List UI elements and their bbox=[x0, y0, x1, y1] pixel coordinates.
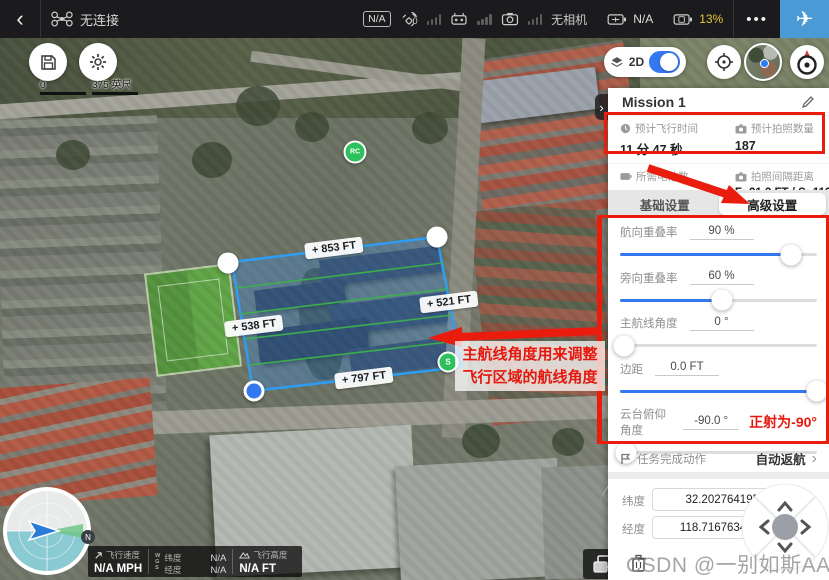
app-screen: + 853 FT + 521 FT + 538 FT + 797 FT S RC… bbox=[0, 0, 829, 580]
trash-icon bbox=[630, 554, 647, 573]
mission-settings-button[interactable] bbox=[79, 43, 117, 81]
wgs-label: WGS bbox=[155, 549, 160, 574]
margin-slider[interactable] bbox=[620, 390, 817, 393]
slider-knob[interactable] bbox=[807, 381, 828, 402]
vertex-handle[interactable] bbox=[427, 227, 448, 248]
selected-vertex-handle[interactable] bbox=[244, 381, 265, 402]
map-2d-label: 2D bbox=[629, 55, 644, 69]
settings-tabs: 基础设置 高级设置 bbox=[608, 190, 829, 218]
map-scale: 0 375 英尺 bbox=[40, 80, 138, 95]
speed-arrow-icon bbox=[94, 551, 103, 560]
advanced-settings: 航向重叠率90 % 旁向重叠率60 % 主航线角度0 ° bbox=[608, 218, 829, 446]
latitude-label: 纬度 bbox=[622, 493, 645, 509]
aircraft-battery-value: N/A bbox=[633, 12, 653, 26]
side-overlap-value[interactable]: 60 % bbox=[690, 270, 754, 285]
gps-count: 0 bbox=[413, 16, 418, 26]
gimbal-annotation-text: 正射为-90° bbox=[749, 412, 817, 432]
delete-mission-button[interactable] bbox=[630, 554, 647, 573]
side-overlap-slider[interactable] bbox=[620, 299, 817, 302]
lat-value: N/A bbox=[211, 553, 227, 564]
hd-signal-bars bbox=[528, 14, 543, 25]
device-battery-value: 13% bbox=[699, 12, 723, 26]
scale-zero: 0 bbox=[40, 80, 86, 91]
dpad-center[interactable] bbox=[772, 514, 798, 540]
finish-flag-icon bbox=[620, 453, 631, 465]
panel-collapse-button[interactable]: › bbox=[595, 94, 608, 120]
locate-button[interactable] bbox=[707, 45, 741, 79]
gps-signal-bars bbox=[427, 14, 442, 25]
slider-knob[interactable] bbox=[781, 244, 802, 265]
mission-title: Mission 1 bbox=[622, 94, 686, 110]
edit-mission-name-button[interactable] bbox=[801, 95, 815, 109]
mission-panel: › Mission 1 预计飞行时间 11 分 47 秒 bbox=[608, 88, 829, 580]
margin-value[interactable]: 0.0 FT bbox=[655, 361, 719, 376]
telemetry-altitude: 飞行高度 N/A FT bbox=[233, 546, 293, 577]
gear-icon bbox=[88, 52, 108, 72]
altitude-icon bbox=[239, 551, 250, 559]
route-angle-annotation: 主航线角度用来调整 飞行区域的航线角度 bbox=[455, 341, 605, 391]
slider-knob[interactable] bbox=[613, 335, 634, 356]
save-mission-button[interactable] bbox=[29, 43, 67, 81]
plane-icon: ✈ bbox=[796, 7, 814, 31]
back-button[interactable]: ‹ bbox=[0, 0, 40, 38]
drone-icon bbox=[51, 11, 73, 27]
altitude-value: N/A FT bbox=[239, 563, 287, 575]
map-mode-pill: 2D bbox=[604, 47, 686, 77]
route-angle-value[interactable]: 0 ° bbox=[690, 316, 754, 331]
clock-icon bbox=[620, 123, 631, 134]
longitude-label: 经度 bbox=[622, 521, 645, 537]
crosshair-icon bbox=[714, 52, 734, 72]
lng-value: N/A bbox=[211, 565, 227, 576]
telemetry-bar: 飞行速度 N/A MPH WGS 纬度N/A 经度N/A 飞行高度 N/A FT bbox=[88, 546, 302, 577]
stat-flight-time: 预计飞行时间 11 分 47 秒 bbox=[608, 116, 723, 164]
vertex-handle[interactable] bbox=[218, 253, 239, 274]
rc-signal-bars bbox=[477, 14, 492, 25]
minimap-thumbnail[interactable] bbox=[744, 43, 782, 81]
camera-transmission-icon bbox=[501, 12, 519, 26]
remote-controller-icon bbox=[450, 12, 468, 26]
compass-reset-button[interactable] bbox=[790, 45, 824, 79]
slider-route-angle: 主航线角度0 ° bbox=[608, 309, 829, 355]
camera-icon bbox=[735, 124, 747, 134]
finish-action-row[interactable]: 任务完成动作 自动返航 › bbox=[608, 445, 829, 472]
camera-status: 无相机 bbox=[551, 11, 587, 28]
speed-value: N/A MPH bbox=[94, 563, 142, 575]
finish-action-value[interactable]: 自动返航 bbox=[756, 449, 806, 468]
map-compass[interactable]: N bbox=[1, 484, 95, 578]
route-angle-slider[interactable] bbox=[620, 344, 817, 347]
slider-front-overlap: 航向重叠率90 % bbox=[608, 218, 829, 264]
slider-knob[interactable] bbox=[712, 290, 733, 311]
2d-toggle[interactable] bbox=[649, 51, 680, 73]
battery-icon bbox=[620, 172, 632, 181]
scale-distance: 375 英尺 bbox=[92, 80, 138, 91]
rc-location-marker: RC bbox=[344, 141, 367, 164]
gimbal-pitch-value[interactable]: -90.0 ° bbox=[683, 415, 739, 430]
flight-mode-badge: N/A bbox=[363, 11, 391, 27]
section-divider bbox=[608, 472, 829, 479]
slider-margin: 边距0.0 FT bbox=[608, 355, 829, 401]
takeoff-button[interactable]: ✈ bbox=[780, 0, 829, 38]
connection-status: 无连接 bbox=[80, 10, 119, 29]
save-icon bbox=[39, 53, 58, 72]
compass-icon bbox=[794, 48, 820, 76]
stat-photo-count: 预计拍照数量 187 bbox=[723, 116, 829, 164]
chevron-right-icon[interactable]: › bbox=[812, 452, 817, 466]
device-battery-icon bbox=[673, 13, 693, 26]
north-label: N bbox=[85, 533, 91, 542]
telemetry-speed: 飞行速度 N/A MPH bbox=[88, 546, 148, 577]
slider-gimbal-pitch: 云台俯仰角度 -90.0 ° 正射为-90° bbox=[608, 400, 829, 446]
pencil-icon bbox=[801, 95, 815, 109]
nudge-dpad[interactable] bbox=[741, 483, 829, 571]
aircraft-battery-icon bbox=[607, 13, 627, 26]
front-overlap-slider[interactable] bbox=[620, 253, 817, 256]
status-bar: ‹ 无连接 N/A 0 bbox=[0, 0, 829, 38]
tab-basic-settings[interactable]: 基础设置 bbox=[611, 193, 719, 215]
tab-advanced-settings[interactable]: 高级设置 bbox=[719, 193, 827, 215]
camera-icon bbox=[735, 172, 747, 182]
slider-side-overlap: 旁向重叠率60 % bbox=[608, 264, 829, 310]
layers-icon bbox=[610, 55, 624, 70]
more-menu-button[interactable]: ••• bbox=[734, 11, 780, 28]
front-overlap-value[interactable]: 90 % bbox=[690, 225, 754, 240]
